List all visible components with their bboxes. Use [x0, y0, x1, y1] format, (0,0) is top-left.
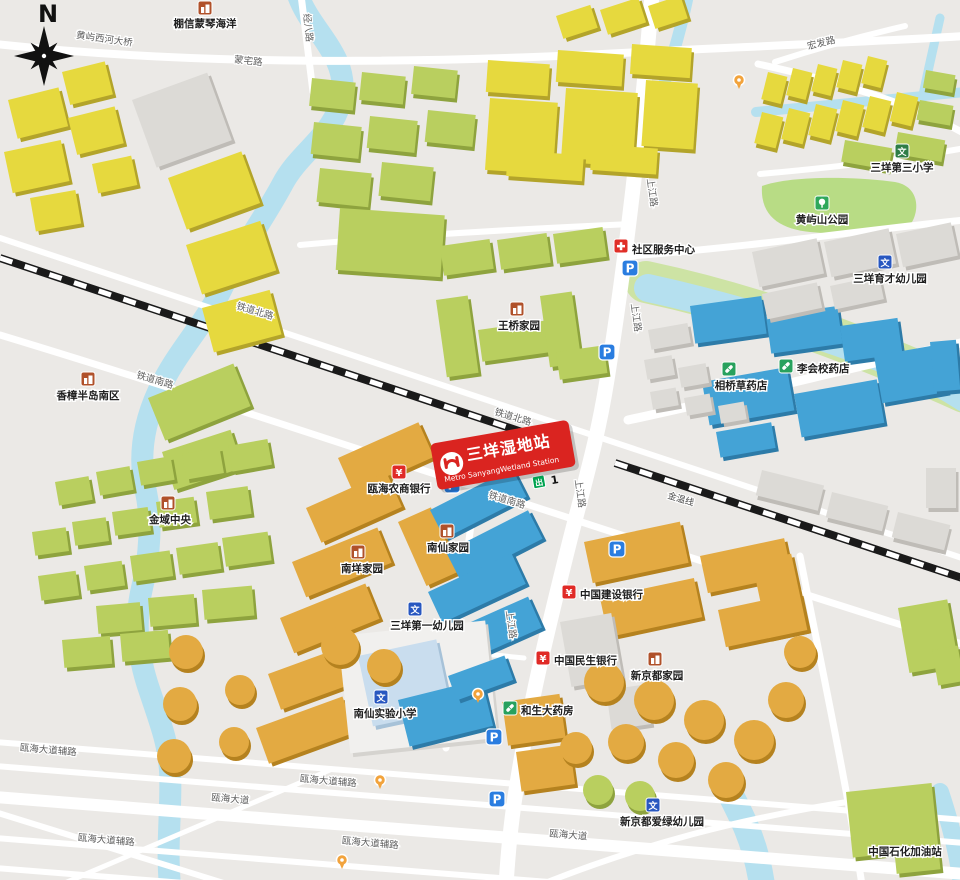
poi-label: 瓯海农商银行	[368, 482, 431, 495]
poi-label: 金域中央	[148, 513, 191, 526]
bank-icon[interactable]: ¥	[392, 465, 406, 479]
poi-label: 三垟育才幼儿园	[853, 272, 927, 285]
building	[335, 208, 447, 281]
building-tower	[658, 742, 696, 782]
building-tower	[784, 636, 818, 672]
building	[378, 162, 436, 205]
building	[96, 466, 137, 500]
building	[256, 696, 359, 768]
building-tower	[583, 775, 615, 809]
building	[411, 66, 461, 103]
svg-text:¥: ¥	[396, 468, 403, 479]
building	[794, 379, 888, 441]
poi-label: 相桥草药店	[715, 379, 768, 392]
building	[891, 512, 953, 555]
poi[interactable]: 新京都爱绿幼儿园	[620, 815, 704, 828]
poi-label: 李会校药店	[796, 362, 850, 375]
bank-icon[interactable]: ¥	[562, 585, 576, 599]
building	[497, 233, 554, 274]
building	[932, 645, 960, 689]
building	[485, 60, 552, 100]
svg-text:P: P	[490, 731, 499, 745]
parking-icon[interactable]: P	[486, 729, 502, 745]
building	[359, 72, 409, 109]
building	[755, 470, 827, 515]
poi[interactable]: 三垟育才幼儿园	[853, 272, 927, 285]
building	[8, 87, 72, 143]
building	[926, 468, 959, 512]
parking-icon[interactable]: P	[489, 791, 505, 807]
svg-text:P: P	[493, 793, 502, 807]
svg-text:¥: ¥	[540, 654, 547, 665]
poi[interactable]: 和生大药房	[520, 704, 574, 717]
building	[176, 542, 224, 579]
poi-label: 中国建设银行	[580, 588, 643, 601]
svg-text:文: 文	[879, 257, 890, 269]
poi-label: 黄屿山公园	[796, 213, 849, 226]
poi-label: 中国民生银行	[554, 654, 617, 667]
building	[310, 122, 364, 163]
poi-label: 三垟第三小学	[871, 161, 934, 174]
building	[555, 50, 626, 91]
residence-icon[interactable]	[510, 302, 524, 316]
svg-text:文: 文	[896, 146, 907, 158]
poi-label: 新京都爱绿幼儿园	[620, 815, 704, 828]
building	[222, 531, 275, 570]
building	[32, 527, 72, 560]
building	[590, 144, 660, 179]
svg-text:文: 文	[409, 604, 420, 616]
residence-icon[interactable]	[161, 496, 175, 510]
svg-text:P: P	[613, 543, 622, 557]
poi-label: 三垟第一幼儿园	[390, 619, 464, 632]
building	[202, 585, 257, 623]
road-label: 瓯海大道辅路	[341, 835, 399, 852]
building-tower	[225, 675, 257, 709]
poi[interactable]: 新京都家园	[631, 669, 684, 682]
building	[186, 220, 280, 298]
building	[810, 64, 840, 100]
north-label: N	[38, 0, 58, 28]
building	[860, 56, 890, 92]
svg-text:出: 出	[534, 477, 544, 488]
poi-label: 中国石化加油站	[868, 845, 942, 858]
poi[interactable]: 香樟半岛南区	[56, 389, 120, 402]
building	[424, 110, 478, 151]
building	[38, 570, 82, 604]
building	[930, 340, 960, 396]
poi-label: 新京都家园	[631, 669, 684, 682]
building	[206, 486, 255, 524]
svg-text:P: P	[603, 346, 612, 360]
building-tower	[768, 682, 806, 722]
building	[825, 492, 891, 536]
building	[436, 295, 482, 381]
road-label: 瓯海大道辅路	[299, 773, 357, 790]
poi[interactable]: 南仙实验小学	[354, 707, 417, 720]
residence-icon[interactable]	[440, 524, 454, 538]
building	[130, 550, 176, 586]
residence-icon[interactable]	[198, 1, 212, 15]
building	[556, 4, 601, 43]
building	[92, 155, 141, 197]
community-service-icon[interactable]	[614, 239, 628, 253]
poi-label: 南仙家园	[427, 541, 469, 554]
poi[interactable]: 黄屿山公园	[796, 213, 849, 226]
building	[132, 72, 236, 172]
road-label: 黄屿西河大桥	[75, 29, 134, 49]
building	[309, 78, 359, 115]
map-canvas[interactable]: 黄屿西河大桥蒙宅路经八路宏发路铁道北路铁道北路铁道南路铁道南路上江路上江路上江路…	[0, 0, 960, 880]
parking-icon[interactable]: P	[622, 260, 638, 276]
residence-icon[interactable]	[648, 652, 662, 666]
school-icon[interactable]: 文	[374, 690, 388, 704]
building-tower	[684, 700, 726, 744]
building	[916, 100, 956, 130]
poi-label: 南仙实验小学	[354, 707, 417, 720]
poi[interactable]: 金域中央	[148, 513, 191, 526]
school-icon[interactable]: 文	[895, 144, 909, 158]
pharmacy-icon[interactable]	[779, 359, 793, 373]
building	[30, 190, 84, 236]
parking-icon[interactable]: P	[599, 344, 615, 360]
building	[648, 323, 694, 354]
building	[120, 630, 173, 666]
poi[interactable]: 中国民生银行	[554, 654, 617, 667]
building	[62, 636, 115, 672]
building	[506, 150, 586, 185]
building	[644, 355, 678, 384]
poi[interactable]: 李会校药店	[796, 362, 850, 375]
poi[interactable]: 中国建设银行	[580, 588, 643, 601]
school-icon[interactable]: 文	[408, 602, 422, 616]
poi-label: 社区服务中心	[631, 243, 695, 256]
poi-label: 香樟半岛南区	[56, 389, 120, 402]
building-tower	[169, 635, 205, 673]
poi-label: 王桥家园	[498, 319, 540, 332]
school-icon[interactable]: 文	[878, 255, 892, 269]
poi[interactable]: 相桥草药店	[715, 379, 768, 392]
poi[interactable]: 社区服务中心	[631, 243, 695, 256]
building	[760, 72, 790, 108]
road-label: 瓯海大道辅路	[19, 742, 77, 759]
building	[62, 61, 116, 109]
poi[interactable]: 王桥家园	[498, 319, 540, 332]
building	[366, 116, 420, 157]
poi-label: 南垟家园	[341, 562, 383, 575]
building	[4, 139, 73, 197]
svg-text:P: P	[626, 262, 635, 276]
road-label: 瓯海大道	[211, 791, 250, 806]
school-icon[interactable]: 文	[646, 798, 660, 812]
map-svg[interactable]: 黄屿西河大桥蒙宅路经八路宏发路铁道北路铁道北路铁道南路铁道南路上江路上江路上江路…	[0, 0, 960, 880]
building	[68, 106, 127, 159]
building-tower	[219, 727, 251, 761]
residence-icon[interactable]	[351, 545, 365, 559]
pharmacy-icon[interactable]	[722, 362, 736, 376]
bank-icon[interactable]: ¥	[536, 651, 550, 665]
building	[553, 227, 610, 268]
poi-pin-icon[interactable]	[375, 775, 386, 790]
poi-pin-icon[interactable]	[734, 75, 745, 90]
poi-label: 棚信蒙琴海洋	[174, 17, 237, 30]
building	[72, 517, 112, 550]
poi[interactable]: 南垟家园	[341, 562, 383, 575]
building	[630, 44, 695, 82]
svg-text:¥: ¥	[566, 588, 573, 599]
poi-label: 和生大药房	[520, 704, 574, 717]
road-label: 上江路	[644, 178, 660, 208]
parking-icon[interactable]: P	[609, 541, 625, 557]
building	[440, 239, 497, 280]
building	[112, 507, 154, 540]
svg-text:文: 文	[375, 692, 386, 704]
pharmacy-icon[interactable]	[503, 701, 517, 715]
building	[702, 367, 797, 430]
building	[753, 112, 785, 153]
park-icon[interactable]	[815, 196, 829, 210]
poi[interactable]: 三垟第一幼儿园	[390, 619, 464, 632]
building	[716, 422, 779, 462]
building	[316, 168, 374, 211]
svg-text:文: 文	[647, 800, 658, 812]
building-tower	[734, 720, 776, 764]
poi[interactable]: 三垟第三小学	[871, 161, 934, 174]
road-label: 蒙宅路	[234, 54, 264, 69]
poi[interactable]: 棚信蒙琴海洋	[174, 17, 237, 30]
poi[interactable]: 瓯海农商银行	[368, 482, 431, 495]
road-label: 上江路	[628, 303, 644, 333]
exit-number: 1	[550, 473, 560, 487]
building	[55, 476, 96, 510]
residence-icon[interactable]	[81, 372, 95, 386]
poi[interactable]: 中国石化加油站	[868, 845, 942, 858]
building-tower	[608, 724, 646, 764]
building-tower	[708, 762, 746, 802]
poi[interactable]: 南仙家园	[427, 541, 469, 554]
building	[84, 560, 128, 594]
building	[148, 594, 199, 631]
building	[641, 80, 700, 154]
